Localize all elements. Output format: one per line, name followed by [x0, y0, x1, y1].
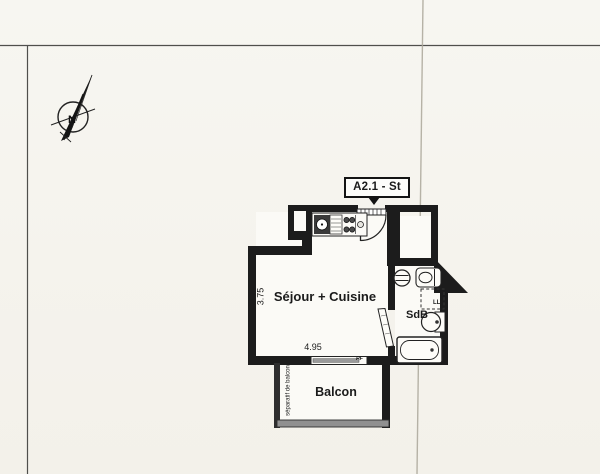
- bathroom-north-wall: [387, 258, 438, 266]
- north-arrow-icon: N: [51, 75, 95, 142]
- unit-tag-pointer-icon: [368, 197, 380, 205]
- kitchen-counter: [312, 213, 367, 236]
- north-wall-left: [312, 205, 358, 212]
- living-kitchen-label: Séjour + Cuisine: [258, 289, 392, 304]
- balcony-label: Balcon: [303, 385, 369, 399]
- french-window-label: PF: [356, 356, 363, 362]
- washing-machine-label: LL: [433, 300, 440, 306]
- vent-circle-icon: [394, 270, 410, 286]
- bathroom-label: SdB: [400, 309, 434, 321]
- balcony-separator-label: séparatif de balcon: [286, 359, 295, 423]
- north-step-wall: [248, 246, 312, 255]
- dimension-depth: 3.75: [256, 280, 267, 314]
- appliance-icon: [358, 222, 364, 228]
- bathtub-icon: [397, 337, 442, 363]
- balcony-east-wall: [382, 363, 390, 428]
- compass-north-letter: N: [68, 114, 76, 126]
- dimension-width: 4.95: [296, 342, 330, 352]
- floor-plan-drawing: N: [0, 0, 600, 474]
- toilet-icon: [416, 268, 441, 287]
- entry-divider-wall: [387, 212, 400, 260]
- floor-plan-scan: N A2.1 - St Séjour + Cuisine SdB Balcon …: [0, 0, 600, 474]
- balcony-separator: [274, 363, 280, 428]
- east-wall-upper: [431, 205, 438, 266]
- shaft-opening: [294, 211, 306, 231]
- unit-tag-label: A2.1 - St: [344, 177, 410, 198]
- north-wall-right: [385, 205, 438, 212]
